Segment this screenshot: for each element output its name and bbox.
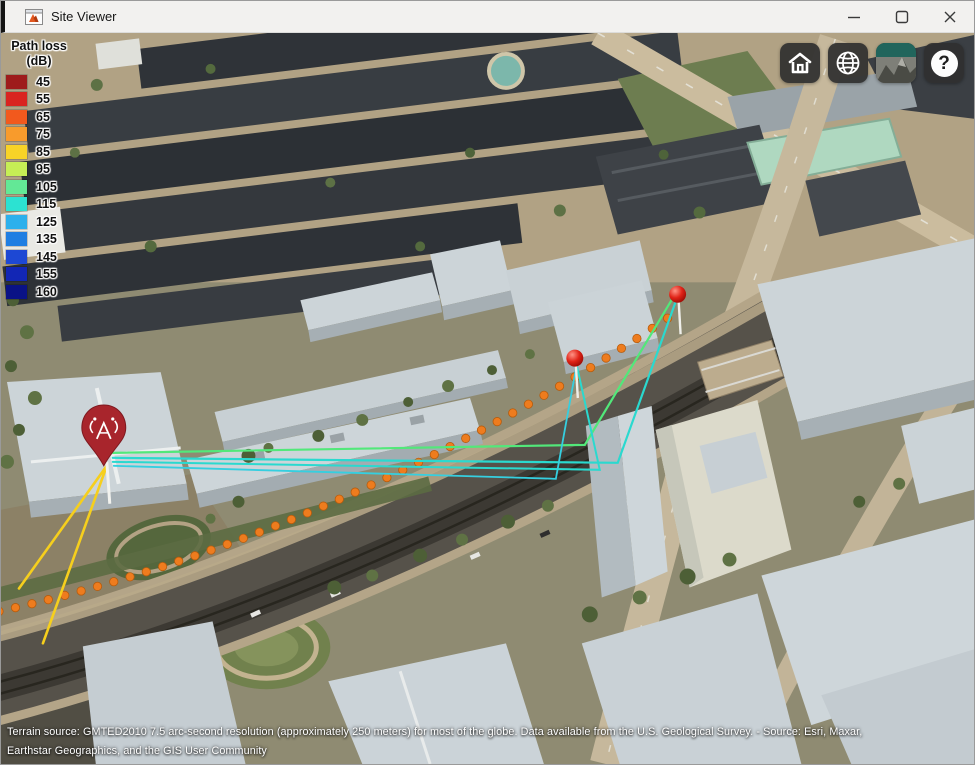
legend-entry: 160 — [6, 283, 84, 301]
route-point — [430, 450, 438, 458]
legend-swatch — [6, 267, 27, 281]
help-button[interactable]: ? — [924, 43, 964, 83]
route-point — [319, 502, 327, 510]
route-point — [271, 522, 279, 530]
route-point — [477, 426, 485, 434]
legend-swatch — [6, 92, 27, 106]
basemap-button[interactable] — [876, 43, 916, 83]
receiver-marker — [566, 350, 583, 367]
route-point — [239, 534, 247, 542]
route-point — [93, 582, 101, 590]
map-viewport[interactable]: Path loss (dB) 4555657585951051151251351… — [1, 33, 974, 764]
legend-swatch — [6, 215, 27, 229]
route-point — [540, 391, 548, 399]
legend-swatch — [6, 162, 27, 176]
legend-value: 125 — [36, 215, 57, 229]
route-point — [28, 600, 36, 608]
legend-swatch — [6, 145, 27, 159]
legend-swatch — [6, 285, 27, 299]
titlebar: Site Viewer — [1, 1, 974, 33]
route-point — [335, 495, 343, 503]
route-point — [11, 603, 19, 611]
attribution-line2: Earthstar Geographics, and the GIS User … — [7, 742, 862, 761]
receiver-marker — [669, 286, 686, 303]
legend-swatch — [6, 75, 27, 89]
legend-swatch — [6, 250, 27, 264]
legend-value: 95 — [36, 162, 50, 176]
legend-entry: 105 — [6, 178, 84, 196]
route-point — [110, 578, 118, 586]
window-title: Site Viewer — [51, 9, 117, 24]
route-point — [77, 587, 85, 595]
route-point — [223, 540, 231, 548]
legend-value: 45 — [36, 75, 50, 89]
basemap-thumbnail-icon — [876, 43, 916, 83]
home-button[interactable] — [780, 43, 820, 83]
legend-value: 85 — [36, 145, 50, 159]
legend-value: 105 — [36, 180, 57, 194]
legend-entry: 145 — [6, 248, 84, 266]
app-icon — [25, 9, 43, 25]
legend-swatch — [6, 232, 27, 246]
route-point — [493, 417, 501, 425]
legend-value: 155 — [36, 267, 57, 281]
route-point — [207, 546, 215, 554]
route-point — [617, 344, 625, 352]
path-loss-legend: Path loss (dB) 4555657585951051151251351… — [6, 39, 84, 301]
legend-entry: 115 — [6, 196, 84, 214]
legend-entry: 155 — [6, 266, 84, 284]
home-icon — [788, 51, 812, 75]
route-point — [586, 363, 594, 371]
legend-entry: 45 — [6, 73, 84, 91]
minimize-button[interactable] — [830, 1, 878, 32]
route-point — [255, 528, 263, 536]
legend-value: 145 — [36, 250, 57, 264]
legend-entry: 85 — [6, 143, 84, 161]
legend-entry: 75 — [6, 126, 84, 144]
globe-icon — [835, 50, 861, 76]
route-point — [555, 382, 563, 390]
map-scene[interactable] — [1, 33, 974, 764]
route-point — [287, 515, 295, 523]
legend-entry: 55 — [6, 91, 84, 109]
legend-swatch — [6, 197, 27, 211]
legend-title-line2: (dB) — [6, 54, 72, 69]
map-toolbar: ? — [780, 43, 964, 83]
legend-entry: 125 — [6, 213, 84, 231]
route-point — [462, 434, 470, 442]
legend-swatch — [6, 127, 27, 141]
legend-value: 75 — [36, 127, 50, 141]
route-point — [158, 562, 166, 570]
route-point — [44, 595, 52, 603]
legend-swatch — [6, 110, 27, 124]
legend-entry: 135 — [6, 231, 84, 249]
legend-value: 55 — [36, 92, 50, 106]
route-point — [175, 557, 183, 565]
help-icon: ? — [931, 50, 958, 77]
globe-button[interactable] — [828, 43, 868, 83]
site-viewer-window: Site Viewer — [0, 0, 975, 765]
close-button[interactable] — [926, 1, 974, 32]
maximize-button[interactable] — [878, 1, 926, 32]
legend-title-line1: Path loss — [6, 39, 72, 54]
route-point — [509, 409, 517, 417]
route-point — [633, 334, 641, 342]
route-point — [602, 354, 610, 362]
legend-value: 65 — [36, 110, 50, 124]
legend-entry: 95 — [6, 161, 84, 179]
legend-swatch — [6, 180, 27, 194]
route-point — [191, 552, 199, 560]
route-point — [524, 400, 532, 408]
route-point — [351, 488, 359, 496]
map-attribution: Terrain source: GMTED2010 7.5 arc-second… — [7, 723, 862, 761]
legend-entry: 65 — [6, 108, 84, 126]
route-point — [142, 568, 150, 576]
legend-value: 160 — [36, 285, 57, 299]
legend-value: 115 — [36, 197, 56, 211]
route-point — [414, 458, 422, 466]
attribution-line1: Terrain source: GMTED2010 7.5 arc-second… — [7, 723, 862, 742]
route-point — [303, 509, 311, 517]
route-point — [367, 481, 375, 489]
legend-value: 135 — [36, 232, 57, 246]
route-point — [126, 573, 134, 581]
